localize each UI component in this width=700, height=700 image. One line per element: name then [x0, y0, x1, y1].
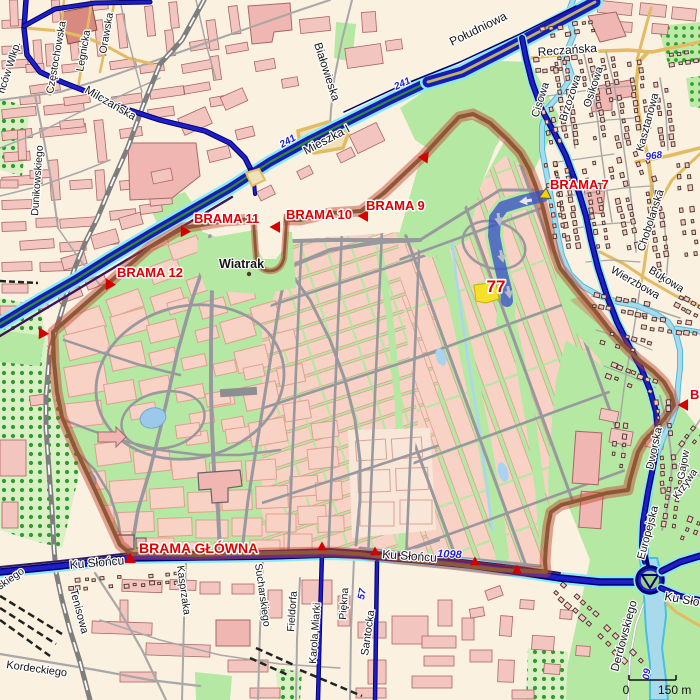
svg-text:BRAMA GŁÓWNA: BRAMA GŁÓWNA	[139, 539, 258, 556]
svg-text:0: 0	[623, 683, 630, 697]
svg-text:150 m: 150 m	[658, 683, 691, 697]
svg-text:09: 09	[641, 667, 654, 680]
svg-text:1098: 1098	[437, 548, 463, 561]
svg-text:BRAMA 7: BRAMA 7	[550, 177, 609, 192]
svg-text:BRAMA 9: BRAMA 9	[366, 198, 425, 213]
svg-text:Piękna: Piękna	[337, 587, 351, 620]
svg-text:BR: BR	[690, 387, 700, 402]
svg-text:77: 77	[487, 277, 506, 296]
svg-text:BRAMA 12: BRAMA 12	[117, 265, 183, 280]
svg-text:BRAMA 10: BRAMA 10	[286, 207, 352, 222]
svg-text:BRAMA 11: BRAMA 11	[194, 211, 259, 226]
svg-text:Wiatrak: Wiatrak	[219, 257, 264, 271]
